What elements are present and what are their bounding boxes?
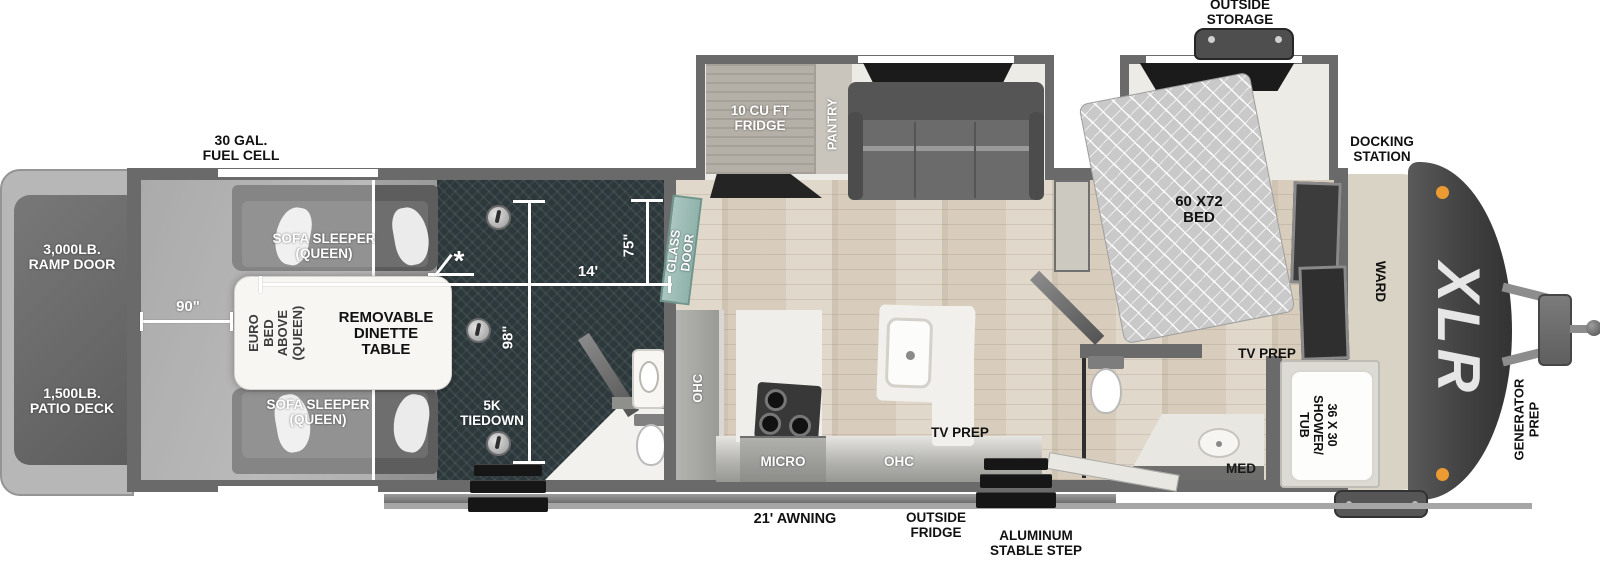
dim-14-tick bbox=[259, 276, 262, 293]
dim-75-label: 75" bbox=[614, 222, 646, 268]
micro-label: MICRO bbox=[742, 452, 824, 472]
half-bath-sink bbox=[632, 349, 666, 409]
kitchen-sink bbox=[885, 317, 933, 389]
sofa-top-label: SOFA SLEEPER (QUEEN) bbox=[256, 230, 392, 264]
garage-entry-steps bbox=[468, 464, 548, 522]
dim-14-line bbox=[260, 283, 672, 286]
stable-step-label: ALUMINUM STABLE STEP bbox=[958, 527, 1114, 561]
fridge-label: 10 CU FT FRIDGE bbox=[708, 100, 812, 138]
tiedown-anchor bbox=[486, 431, 511, 456]
outside-storage-box bbox=[1194, 28, 1294, 60]
fuel-cell-label: 30 GAL. FUEL CELL bbox=[176, 128, 306, 168]
dim-90-line bbox=[141, 320, 233, 323]
living-sofa bbox=[848, 82, 1044, 200]
fuel-cell-slide-mark bbox=[218, 169, 378, 177]
marker-light bbox=[1436, 468, 1449, 481]
floorplan: 3,000LB. RAMP DOOR 1,500LB. PATIO DECK E… bbox=[0, 0, 1600, 561]
bottom-slide-mark bbox=[218, 486, 378, 494]
med-cabinet-label: MED bbox=[1218, 460, 1264, 478]
bed-label: 60 X72 BED bbox=[1154, 188, 1244, 232]
stove bbox=[754, 382, 822, 442]
tiedown-anchor bbox=[466, 318, 491, 343]
patio-deck-label: 1,500LB. PATIO DECK bbox=[16, 382, 128, 420]
marker-light bbox=[1436, 186, 1449, 199]
toilet bbox=[1088, 356, 1124, 416]
propane-cover bbox=[1538, 294, 1572, 366]
euro-bed-label: EURO BED ABOVE (QUEEN) bbox=[244, 284, 308, 382]
ramp-door-label: 3,000LB. RAMP DOOR bbox=[16, 238, 128, 276]
dim-98-label: 98" bbox=[492, 314, 526, 360]
main-entry-steps bbox=[976, 458, 1056, 524]
rear-wall bbox=[127, 168, 141, 492]
ward-label: WARD bbox=[1360, 250, 1402, 314]
outside-storage-label: OUTSIDE STORAGE bbox=[1174, 0, 1306, 28]
tiedown-label: 5K TIEDOWN bbox=[444, 396, 540, 432]
tiedown-anchor bbox=[486, 205, 511, 230]
pantry-label: PANTRY bbox=[818, 88, 848, 160]
dim-90-label: 90" bbox=[152, 298, 224, 316]
brand-logo: XLR bbox=[1414, 230, 1502, 430]
footnote-marker: * bbox=[447, 248, 471, 274]
bath-sink bbox=[1198, 428, 1240, 458]
dim-75-line bbox=[646, 200, 649, 285]
dim-14-label: 14' bbox=[556, 263, 620, 281]
half-bath-toilet bbox=[634, 414, 668, 470]
dim-90-tick bbox=[140, 312, 143, 331]
sofa-bottom-label: SOFA SLEEPER (QUEEN) bbox=[250, 396, 386, 430]
hitch-ball bbox=[1586, 320, 1600, 336]
generator-prep-label: GENERATOR PREP bbox=[1502, 366, 1552, 474]
shower-label: 36 X 30 SHOWER/ TUB bbox=[1290, 376, 1346, 474]
bedroom-partition-wall bbox=[1054, 180, 1090, 272]
dim-98-tick bbox=[513, 200, 545, 203]
slide-indicator bbox=[858, 56, 1014, 63]
awning-label: 21' AWNING bbox=[732, 511, 858, 529]
ramp-door-panel bbox=[14, 195, 132, 465]
tv-prep-bedroom-label: TV PREP bbox=[1226, 345, 1308, 363]
ohc-lower-label: OHC bbox=[874, 452, 924, 472]
dim-14-tick bbox=[668, 276, 671, 293]
docking-station-label: DOCKING STATION bbox=[1336, 132, 1428, 168]
dinette-table-label: REMOVABLE DINETTE TABLE bbox=[326, 294, 446, 374]
ohc-wall-label: OHC bbox=[680, 360, 716, 416]
dim-75-tick bbox=[631, 199, 663, 202]
dim-90-tick bbox=[230, 312, 233, 331]
tv-prep-kitchen-label: TV PREP bbox=[920, 424, 1000, 442]
